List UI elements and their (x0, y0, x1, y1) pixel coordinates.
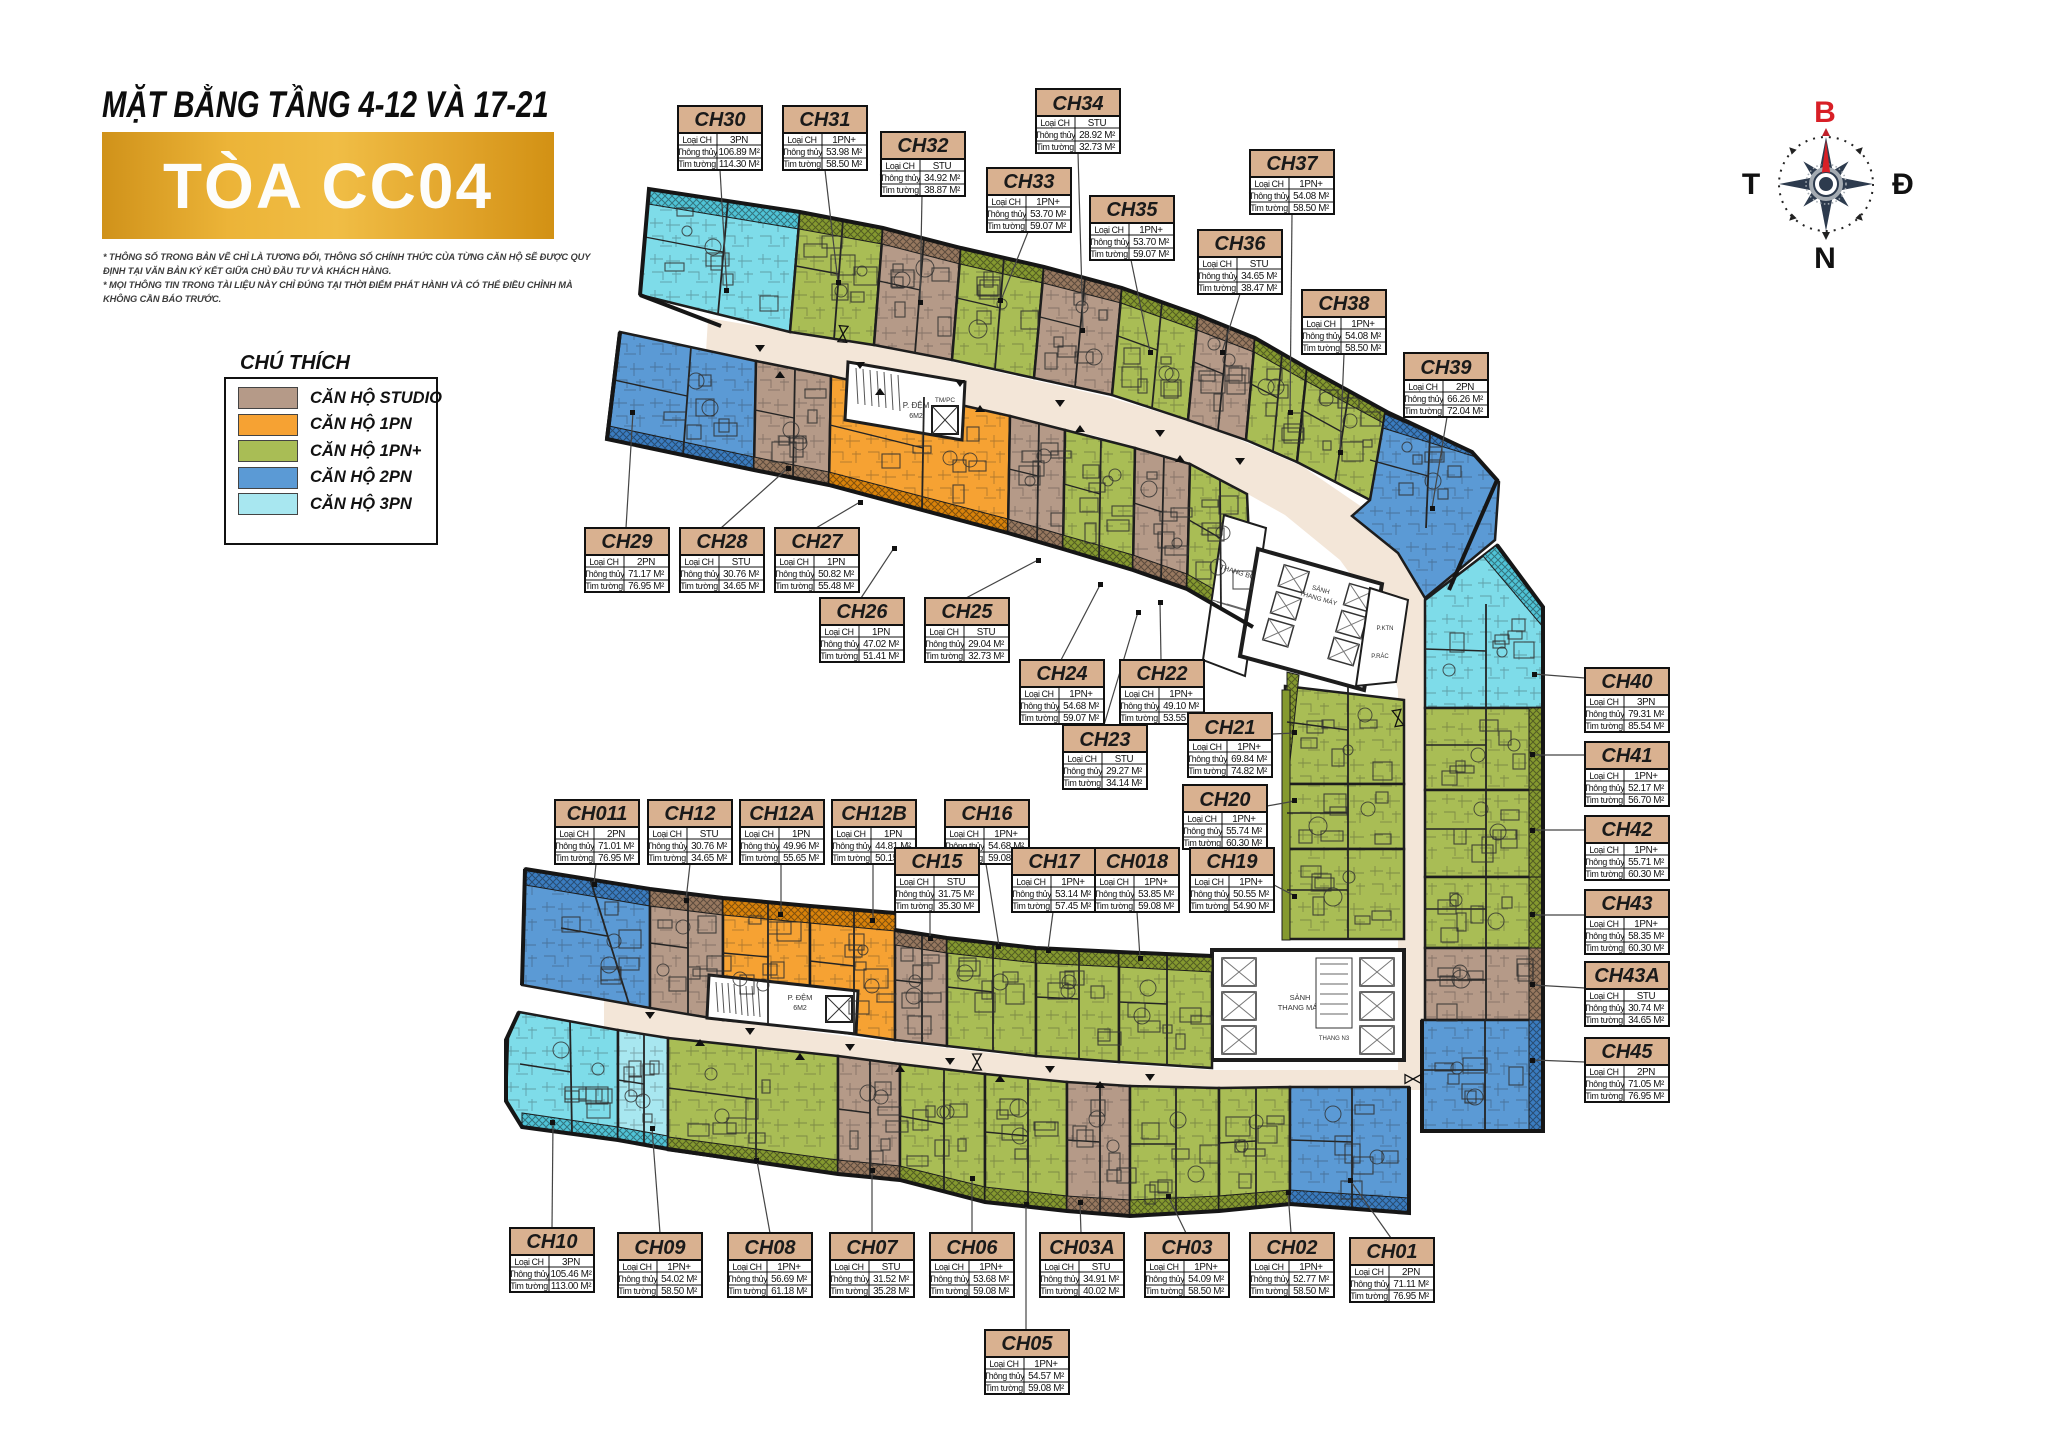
svg-text:CH12A: CH12A (749, 803, 815, 825)
svg-text:CH43A: CH43A (1594, 965, 1660, 987)
svg-text:Loại CH: Loại CH (787, 135, 816, 145)
svg-text:Tim tường: Tim tường (1585, 869, 1623, 879)
svg-text:CH03: CH03 (1161, 1237, 1212, 1259)
svg-text:1PN+: 1PN+ (1351, 319, 1375, 330)
svg-text:50.82 M²: 50.82 M² (818, 569, 855, 580)
svg-text:CH16: CH16 (961, 803, 1013, 825)
svg-text:Loại CH: Loại CH (1192, 742, 1221, 752)
svg-text:1PN+: 1PN+ (1036, 197, 1060, 208)
svg-text:Tim tường: Tim tường (1350, 1291, 1388, 1301)
svg-text:CH31: CH31 (799, 109, 850, 131)
svg-text:CH39: CH39 (1420, 357, 1472, 379)
svg-text:Tim tường: Tim tường (895, 901, 933, 911)
svg-text:Tim tường: Tim tường (1036, 142, 1074, 152)
svg-text:Loại CH: Loại CH (1408, 382, 1437, 392)
svg-text:29.27 M²: 29.27 M² (1106, 766, 1143, 777)
svg-text:Loại CH: Loại CH (684, 557, 713, 567)
svg-text:61.18 M²: 61.18 M² (771, 1286, 808, 1297)
svg-text:1PN+: 1PN+ (1069, 689, 1093, 700)
svg-text:6M2: 6M2 (909, 413, 923, 420)
svg-text:47.02 M²: 47.02 M² (863, 639, 900, 650)
svg-text:TM/PC: TM/PC (935, 397, 956, 404)
svg-text:CH32: CH32 (897, 135, 948, 157)
svg-text:Thông thủy: Thông thủy (1039, 1274, 1080, 1284)
svg-text:Tim tường: Tim tường (618, 1286, 656, 1296)
svg-text:Loại CH: Loại CH (1589, 919, 1618, 929)
svg-text:STU: STU (700, 829, 719, 840)
svg-text:3PN: 3PN (1637, 697, 1655, 708)
svg-text:2PN: 2PN (1402, 1267, 1420, 1278)
svg-text:Loại CH: Loại CH (934, 1262, 963, 1272)
svg-text:Thông thủy: Thông thủy (1403, 394, 1444, 404)
svg-text:1PN+: 1PN+ (1139, 225, 1163, 236)
svg-text:CH05: CH05 (1001, 1333, 1053, 1355)
svg-text:STU: STU (947, 877, 966, 888)
svg-text:Thông thủy: Thông thủy (782, 147, 823, 157)
svg-text:CH34: CH34 (1052, 93, 1103, 115)
svg-text:58.35 M²: 58.35 M² (1628, 931, 1665, 942)
svg-text:30.74 M²: 30.74 M² (1628, 1003, 1665, 1014)
svg-text:76.95 M²: 76.95 M² (628, 581, 665, 592)
svg-text:CH29: CH29 (601, 531, 653, 553)
svg-text:CH26: CH26 (836, 601, 888, 623)
svg-text:6M2: 6M2 (793, 1005, 807, 1012)
svg-text:Loại CH: Loại CH (1149, 1262, 1178, 1272)
svg-text:CH33: CH33 (1003, 171, 1054, 193)
svg-text:CH08: CH08 (744, 1237, 796, 1259)
svg-text:Loại CH: Loại CH (514, 1257, 543, 1267)
svg-text:Loại CH: Loại CH (1589, 991, 1618, 1001)
svg-text:1PN+: 1PN+ (777, 1262, 801, 1273)
svg-text:Tim tường: Tim tường (881, 185, 919, 195)
svg-text:38.47 M²: 38.47 M² (1241, 283, 1278, 294)
svg-text:CH011: CH011 (567, 803, 628, 825)
svg-text:71.01 M²: 71.01 M² (598, 841, 635, 852)
svg-text:1PN+: 1PN+ (1034, 1359, 1058, 1370)
svg-text:30.76 M²: 30.76 M² (723, 569, 760, 580)
svg-text:34.14 M²: 34.14 M² (1106, 778, 1143, 789)
svg-text:32.73 M²: 32.73 M² (968, 651, 1005, 662)
svg-text:Tim tường: Tim tường (1145, 1286, 1183, 1296)
svg-text:34.91 M²: 34.91 M² (1083, 1274, 1120, 1285)
svg-text:105.46 M²: 105.46 M² (551, 1269, 593, 1280)
svg-text:Loại CH: Loại CH (1187, 814, 1216, 824)
svg-text:Loại CH: Loại CH (1254, 1262, 1283, 1272)
svg-text:CH19: CH19 (1206, 851, 1258, 873)
svg-text:Thông thủy: Thông thủy (679, 569, 720, 579)
svg-text:Loại CH: Loại CH (834, 1262, 863, 1272)
svg-text:Thông thủy: Thông thủy (1019, 701, 1060, 711)
svg-text:Thông thủy: Thông thủy (819, 639, 860, 649)
svg-text:52.17 M²: 52.17 M² (1628, 783, 1665, 794)
svg-text:Thông thủy: Thông thủy (1035, 130, 1076, 140)
svg-text:Loại CH: Loại CH (885, 161, 914, 171)
svg-text:51.41 M²: 51.41 M² (863, 651, 900, 662)
svg-text:Thông thủy: Thông thủy (894, 889, 935, 899)
svg-text:58.50 M²: 58.50 M² (1293, 1286, 1330, 1297)
svg-text:71.05 M²: 71.05 M² (1628, 1079, 1665, 1090)
svg-text:69.84 M²: 69.84 M² (1231, 754, 1268, 765)
svg-text:Tim tường: Tim tường (1585, 721, 1623, 731)
svg-text:53.98 M²: 53.98 M² (826, 147, 863, 158)
svg-text:31.52 M²: 31.52 M² (873, 1274, 910, 1285)
svg-text:1PN+: 1PN+ (1299, 179, 1323, 190)
svg-text:Tim tường: Tim tường (648, 853, 686, 863)
svg-text:Thông thủy: Thông thủy (924, 639, 965, 649)
svg-text:1PN+: 1PN+ (1634, 919, 1658, 930)
svg-text:30.76 M²: 30.76 M² (691, 841, 728, 852)
svg-text:1PN+: 1PN+ (1237, 742, 1261, 753)
svg-text:CH36: CH36 (1214, 233, 1266, 255)
svg-text:1PN+: 1PN+ (1634, 771, 1658, 782)
svg-text:76.95 M²: 76.95 M² (1628, 1091, 1665, 1102)
svg-text:Loại CH: Loại CH (779, 557, 808, 567)
svg-text:CH25: CH25 (941, 601, 993, 623)
svg-text:SẢNH: SẢNH (1290, 993, 1311, 1002)
svg-text:53.68 M²: 53.68 M² (973, 1274, 1010, 1285)
svg-text:STU: STU (933, 161, 952, 172)
svg-text:34.65 M²: 34.65 M² (723, 581, 760, 592)
svg-text:CH28: CH28 (696, 531, 748, 553)
svg-text:Tim tường: Tim tường (1585, 1015, 1623, 1025)
svg-text:CH45: CH45 (1601, 1041, 1653, 1063)
svg-text:1PN+: 1PN+ (1634, 845, 1658, 856)
svg-text:Loại CH: Loại CH (989, 1359, 1018, 1369)
svg-text:CH06: CH06 (946, 1237, 998, 1259)
svg-text:28.92 M²: 28.92 M² (1079, 130, 1116, 141)
svg-text:1PN+: 1PN+ (1232, 814, 1256, 825)
svg-text:Tim tường: Tim tường (783, 159, 821, 169)
svg-text:CH10: CH10 (526, 1231, 577, 1253)
svg-text:Tim tường: Tim tường (1302, 343, 1340, 353)
svg-text:Loại CH: Loại CH (1024, 689, 1053, 699)
svg-text:2PN: 2PN (607, 829, 625, 840)
svg-text:76.95 M²: 76.95 M² (1393, 1291, 1430, 1302)
svg-text:Thông thủy: Thông thủy (677, 147, 718, 157)
svg-text:Loại CH: Loại CH (949, 829, 978, 839)
svg-text:Loại CH: Loại CH (1040, 118, 1069, 128)
svg-text:CH37: CH37 (1266, 153, 1318, 175)
svg-text:Tim tường: Tim tường (925, 651, 963, 661)
svg-text:Tim tường: Tim tường (678, 159, 716, 169)
svg-text:Tim tường: Tim tường (728, 1286, 766, 1296)
svg-text:Thông thủy: Thông thủy (929, 1274, 970, 1284)
svg-text:Tim tường: Tim tường (830, 1286, 868, 1296)
svg-text:CH27: CH27 (791, 531, 843, 553)
svg-text:49.10 M²: 49.10 M² (1163, 701, 1200, 712)
svg-text:Loại CH: Loại CH (559, 829, 588, 839)
svg-text:P. ĐỆM: P. ĐỆM (903, 401, 930, 410)
svg-text:CH018: CH018 (1106, 851, 1169, 873)
svg-text:Tim tường: Tim tường (987, 221, 1025, 231)
svg-text:Loại CH: Loại CH (1094, 225, 1123, 235)
svg-text:55.74 M²: 55.74 M² (1226, 826, 1263, 837)
svg-text:Thông thủy: Thông thủy (831, 841, 872, 851)
svg-text:P.KTN: P.KTN (1377, 626, 1394, 632)
svg-text:Thông thủy: Thông thủy (1249, 1274, 1290, 1284)
svg-text:1PN: 1PN (792, 829, 810, 840)
svg-text:Loại CH: Loại CH (991, 197, 1020, 207)
svg-text:STU: STU (977, 627, 996, 638)
svg-text:Tim tường: Tim tường (1250, 1286, 1288, 1296)
svg-text:56.69 M²: 56.69 M² (771, 1274, 808, 1285)
svg-text:Tim tường: Tim tường (585, 581, 623, 591)
svg-text:Loại CH: Loại CH (1589, 771, 1618, 781)
svg-text:55.65 M²: 55.65 M² (783, 853, 820, 864)
svg-text:3PN: 3PN (730, 135, 748, 146)
svg-text:Thông thủy: Thông thủy (584, 569, 625, 579)
svg-text:3PN: 3PN (562, 1257, 580, 1268)
svg-text:59.08 M²: 59.08 M² (973, 1286, 1010, 1297)
svg-text:Tim tường: Tim tường (1585, 1091, 1623, 1101)
svg-text:Thông thủy: Thông thủy (509, 1269, 550, 1279)
svg-text:59.08 M²: 59.08 M² (1138, 901, 1175, 912)
svg-text:Thông thủy: Thông thủy (1062, 766, 1103, 776)
svg-text:1PN+: 1PN+ (979, 1262, 1003, 1273)
svg-text:Tim tường: Tim tường (680, 581, 718, 591)
svg-text:114.30 M²: 114.30 M² (719, 159, 760, 170)
svg-text:Thông thủy: Thông thủy (1301, 331, 1342, 341)
svg-text:31.75 M²: 31.75 M² (938, 889, 975, 900)
svg-text:72.04 M²: 72.04 M² (1447, 406, 1484, 417)
svg-text:CH12: CH12 (664, 803, 715, 825)
svg-text:54.08 M²: 54.08 M² (1293, 191, 1330, 202)
svg-text:Tim tường: Tim tường (775, 581, 813, 591)
svg-text:58.50 M²: 58.50 M² (826, 159, 863, 170)
svg-text:Thông thủy: Thông thủy (829, 1274, 870, 1284)
svg-text:CH15: CH15 (911, 851, 963, 873)
svg-text:50.55 M²: 50.55 M² (1233, 889, 1270, 900)
svg-text:CH35: CH35 (1106, 199, 1158, 221)
svg-text:Thông thủy: Thông thủy (1584, 783, 1625, 793)
svg-text:1PN: 1PN (872, 627, 890, 638)
svg-text:N: N (1814, 242, 1836, 275)
svg-text:2PN: 2PN (1637, 1067, 1655, 1078)
svg-text:Thông thủy: Thông thủy (1189, 889, 1230, 899)
svg-text:58.50 M²: 58.50 M² (661, 1286, 698, 1297)
svg-text:54.02 M²: 54.02 M² (661, 1274, 698, 1285)
svg-text:Tim tường: Tim tường (1190, 901, 1228, 911)
svg-text:52.77 M²: 52.77 M² (1293, 1274, 1330, 1285)
svg-text:STU: STU (882, 1262, 901, 1273)
svg-text:Thông thủy: Thông thủy (1011, 889, 1052, 899)
svg-text:54.57 M²: 54.57 M² (1028, 1371, 1065, 1382)
svg-text:CH41: CH41 (1601, 745, 1652, 767)
svg-text:CH12B: CH12B (841, 803, 907, 825)
svg-text:P. ĐỆM: P. ĐỆM (788, 993, 813, 1002)
svg-text:Thông thủy: Thông thủy (647, 841, 688, 851)
svg-text:79.31 M²: 79.31 M² (1628, 709, 1665, 720)
svg-text:Loại CH: Loại CH (732, 1262, 761, 1272)
svg-text:58.50 M²: 58.50 M² (1293, 203, 1330, 214)
svg-text:Tim tường: Tim tường (1188, 766, 1226, 776)
svg-text:59.07 M²: 59.07 M² (1063, 713, 1100, 724)
svg-text:Thông thủy: Thông thủy (1584, 1079, 1625, 1089)
svg-text:60.30 M²: 60.30 M² (1628, 943, 1665, 954)
svg-text:1PN+: 1PN+ (1239, 877, 1263, 888)
svg-text:1PN+: 1PN+ (1299, 1262, 1323, 1273)
svg-text:29.04 M²: 29.04 M² (968, 639, 1005, 650)
svg-text:Thông thủy: Thông thủy (1584, 1003, 1625, 1013)
svg-text:55.71 M²: 55.71 M² (1628, 857, 1665, 868)
svg-text:Loại CH: Loại CH (1354, 1267, 1383, 1277)
svg-text:1PN+: 1PN+ (832, 135, 856, 146)
svg-text:STU: STU (1115, 754, 1134, 765)
svg-text:58.50 M²: 58.50 M² (1188, 1286, 1225, 1297)
svg-text:CH21: CH21 (1204, 717, 1255, 739)
svg-text:40.02 M²: 40.02 M² (1083, 1286, 1120, 1297)
svg-text:CH07: CH07 (846, 1237, 898, 1259)
svg-text:Loại CH: Loại CH (1254, 179, 1283, 189)
svg-text:Tim tường: Tim tường (1183, 838, 1221, 848)
svg-text:Loại CH: Loại CH (1099, 877, 1128, 887)
svg-text:53.70 M²: 53.70 M² (1030, 209, 1067, 220)
svg-text:CH38: CH38 (1318, 293, 1370, 315)
svg-text:Loại CH: Loại CH (1589, 697, 1618, 707)
svg-text:Thông thủy: Thông thủy (1197, 271, 1238, 281)
svg-text:Tim tường: Tim tường (1585, 943, 1623, 953)
svg-text:59.07 M²: 59.07 M² (1030, 221, 1067, 232)
svg-text:STU: STU (1250, 259, 1269, 270)
svg-text:1PN+: 1PN+ (1169, 689, 1193, 700)
svg-text:Tim tường: Tim tường (1040, 1286, 1078, 1296)
svg-text:60.30 M²: 60.30 M² (1628, 869, 1665, 880)
svg-text:THANG N3: THANG N3 (1319, 1036, 1350, 1042)
svg-text:Thông thủy: Thông thủy (617, 1274, 658, 1284)
svg-text:Tim tường: Tim tường (985, 1383, 1023, 1393)
svg-text:T: T (1742, 168, 1760, 201)
svg-text:35.28 M²: 35.28 M² (873, 1286, 910, 1297)
svg-text:113.00 M²: 113.00 M² (551, 1281, 592, 1292)
svg-text:Tim tường: Tim tường (930, 1286, 968, 1296)
svg-text:CH20: CH20 (1199, 789, 1250, 811)
svg-text:74.82 M²: 74.82 M² (1231, 766, 1268, 777)
svg-text:66.26 M²: 66.26 M² (1447, 394, 1484, 405)
svg-text:55.48 M²: 55.48 M² (818, 581, 855, 592)
svg-text:CH17: CH17 (1028, 851, 1080, 873)
svg-text:CH01: CH01 (1366, 1241, 1417, 1263)
svg-text:2PN: 2PN (637, 557, 655, 568)
svg-text:32.73 M²: 32.73 M² (1079, 142, 1116, 153)
svg-text:Tim tường: Tim tường (1404, 406, 1442, 416)
svg-text:Tim tường: Tim tường (1250, 203, 1288, 213)
svg-text:Tim tường: Tim tường (1198, 283, 1236, 293)
svg-text:Tim tường: Tim tường (555, 853, 593, 863)
svg-text:Tim tường: Tim tường (1585, 795, 1623, 805)
svg-text:Loại CH: Loại CH (1044, 1262, 1073, 1272)
svg-text:57.45 M²: 57.45 M² (1055, 901, 1092, 912)
svg-text:STU: STU (732, 557, 751, 568)
svg-text:Thông thủy: Thông thủy (984, 1371, 1025, 1381)
svg-text:76.95 M²: 76.95 M² (598, 853, 635, 864)
svg-text:49.96 M²: 49.96 M² (783, 841, 820, 852)
svg-text:35.30 M²: 35.30 M² (938, 901, 975, 912)
svg-text:Tim tường: Tim tường (1095, 901, 1133, 911)
svg-text:1PN+: 1PN+ (1061, 877, 1085, 888)
svg-text:Loại CH: Loại CH (1202, 259, 1231, 269)
svg-text:Thông thủy: Thông thủy (880, 173, 921, 183)
svg-text:1PN+: 1PN+ (667, 1262, 691, 1273)
svg-text:Thông thủy: Thông thủy (1089, 237, 1130, 247)
svg-text:Loại CH: Loại CH (1016, 877, 1045, 887)
svg-text:53.70 M²: 53.70 M² (1133, 237, 1170, 248)
svg-text:P.RÁC: P.RÁC (1371, 653, 1389, 660)
svg-text:34.65 M²: 34.65 M² (1241, 271, 1278, 282)
svg-text:Loại CH: Loại CH (929, 627, 958, 637)
svg-text:Tim tường: Tim tường (1063, 778, 1101, 788)
svg-text:Tim tường: Tim tường (832, 853, 870, 863)
svg-text:CH24: CH24 (1036, 663, 1087, 685)
svg-text:CH02: CH02 (1266, 1237, 1317, 1259)
svg-text:38.87 M²: 38.87 M² (924, 185, 961, 196)
svg-text:58.50 M²: 58.50 M² (1345, 343, 1382, 354)
svg-text:CH03A: CH03A (1049, 1237, 1115, 1259)
svg-text:54.08 M²: 54.08 M² (1345, 331, 1382, 342)
svg-text:Loại CH: Loại CH (1067, 754, 1096, 764)
svg-text:Loại CH: Loại CH (652, 829, 681, 839)
svg-text:Loại CH: Loại CH (682, 135, 711, 145)
svg-text:Loại CH: Loại CH (836, 829, 865, 839)
svg-text:CH09: CH09 (634, 1237, 686, 1259)
svg-text:56.70 M²: 56.70 M² (1628, 795, 1665, 806)
svg-text:Loại CH: Loại CH (1306, 319, 1335, 329)
svg-text:Thông thủy: Thông thủy (554, 841, 595, 851)
svg-text:Loại CH: Loại CH (1124, 689, 1153, 699)
svg-text:Loại CH: Loại CH (824, 627, 853, 637)
svg-text:53.85 M²: 53.85 M² (1138, 889, 1175, 900)
svg-text:Loại CH: Loại CH (589, 557, 618, 567)
svg-text:34.92 M²: 34.92 M² (924, 173, 961, 184)
svg-text:Loại CH: Loại CH (899, 877, 928, 887)
svg-text:Loại CH: Loại CH (1589, 845, 1618, 855)
svg-text:CH42: CH42 (1601, 819, 1652, 841)
svg-text:71.17 M²: 71.17 M² (628, 569, 665, 580)
svg-text:Thông thủy: Thông thủy (1349, 1279, 1390, 1289)
svg-text:STU: STU (1092, 1262, 1111, 1273)
svg-text:1PN: 1PN (827, 557, 845, 568)
svg-text:Loại CH: Loại CH (1194, 877, 1223, 887)
svg-text:1PN+: 1PN+ (1144, 877, 1168, 888)
svg-text:CH43: CH43 (1601, 893, 1652, 915)
svg-text:Thông thủy: Thông thủy (986, 209, 1027, 219)
svg-text:Thông thủy: Thông thủy (1144, 1274, 1185, 1284)
svg-text:Tim tường: Tim tường (1090, 249, 1128, 259)
svg-text:STU: STU (1088, 118, 1107, 129)
svg-text:59.08 M²: 59.08 M² (1028, 1383, 1065, 1394)
svg-text:106.89 M²: 106.89 M² (719, 147, 761, 158)
svg-text:Tim tường: Tim tường (740, 853, 778, 863)
svg-text:CH40: CH40 (1601, 671, 1652, 693)
svg-text:Loại CH: Loại CH (1589, 1067, 1618, 1077)
svg-text:1PN+: 1PN+ (1194, 1262, 1218, 1273)
svg-text:Tim tường: Tim tường (1020, 713, 1058, 723)
svg-text:59.07 M²: 59.07 M² (1133, 249, 1170, 260)
svg-text:B: B (1814, 96, 1836, 129)
svg-text:Thông thủy: Thông thủy (1187, 754, 1228, 764)
svg-text:1PN: 1PN (884, 829, 902, 840)
svg-text:Thông thủy: Thông thủy (1119, 701, 1160, 711)
svg-text:Tim tường: Tim tường (1120, 713, 1158, 723)
svg-text:STU: STU (1637, 991, 1656, 1002)
svg-text:CH30: CH30 (694, 109, 745, 131)
svg-text:85.54 M²: 85.54 M² (1628, 721, 1665, 732)
svg-text:Thông thủy: Thông thủy (1584, 931, 1625, 941)
svg-text:Thông thủy: Thông thủy (1094, 889, 1135, 899)
svg-text:Thông thủy: Thông thủy (1584, 857, 1625, 867)
svg-text:54.90 M²: 54.90 M² (1233, 901, 1270, 912)
svg-text:Đ: Đ (1892, 168, 1914, 201)
svg-text:53.14 M²: 53.14 M² (1055, 889, 1092, 900)
